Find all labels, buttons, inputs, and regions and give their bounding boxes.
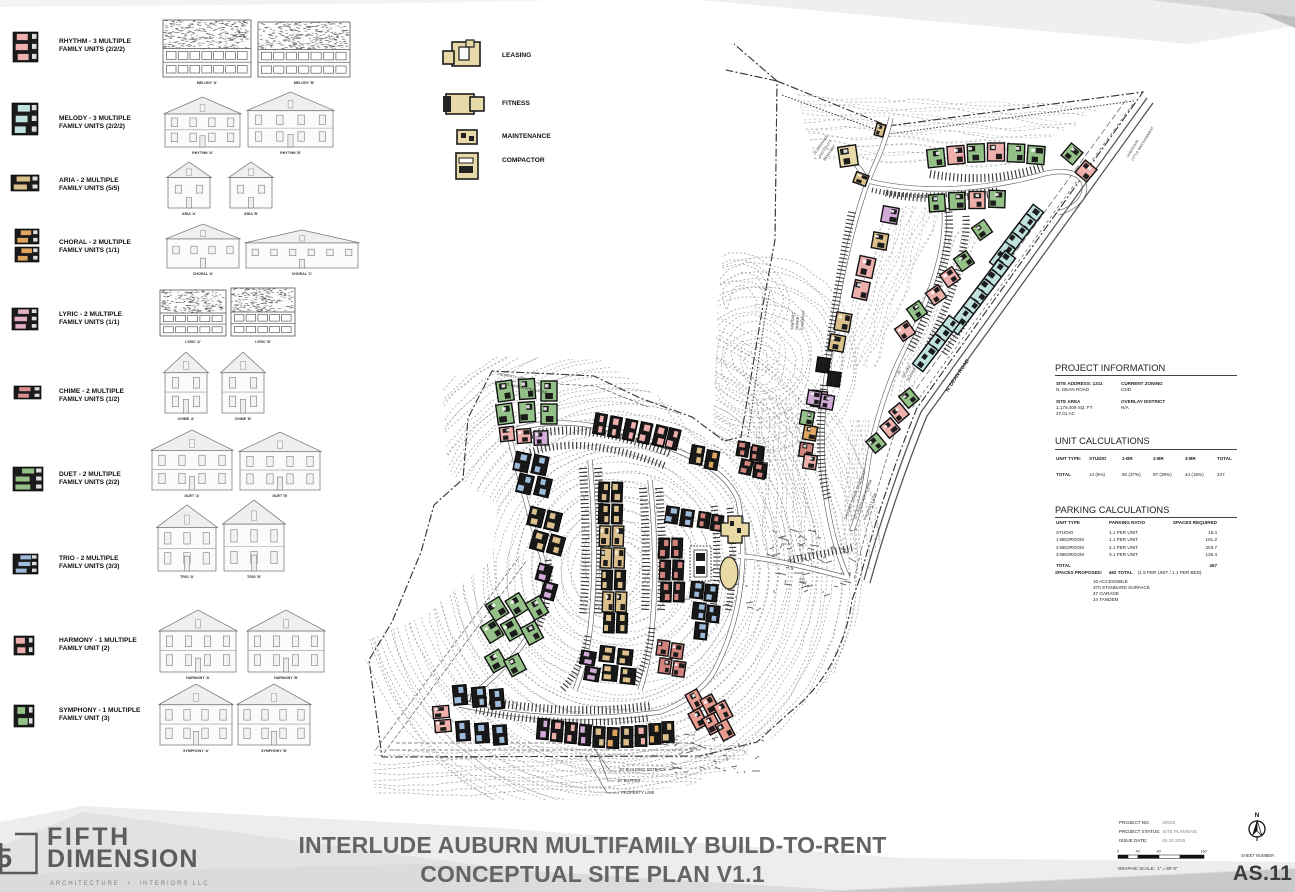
svg-text:CHORAL 'C': CHORAL 'C' (292, 272, 313, 276)
svg-text:SYMPHONY 'A': SYMPHONY 'A' (183, 749, 209, 753)
svg-text:MELODY 'B': MELODY 'B' (294, 81, 315, 85)
svg-text:DUET 'B': DUET 'B' (272, 494, 287, 498)
svg-text:DUET 'A': DUET 'A' (184, 494, 199, 498)
svg-text:PROPERTY LINE: PROPERTY LINE (621, 790, 655, 795)
svg-text:CHIME 'B': CHIME 'B' (235, 417, 252, 421)
svg-text:HARMONY 'A': HARMONY 'A' (186, 676, 210, 680)
svg-text:HARMONY 'B': HARMONY 'B' (274, 676, 298, 680)
svg-text:LYRIC 'A': LYRIC 'A' (185, 340, 201, 344)
svg-text:LYRIC 'B': LYRIC 'B' (255, 340, 271, 344)
svg-text:20' BUILDING SETBACK: 20' BUILDING SETBACK (619, 767, 666, 772)
svg-text:TRIO 'B': TRIO 'B' (247, 575, 261, 579)
svg-text:CHORAL 'A': CHORAL 'A' (193, 272, 214, 276)
svg-text:ARIA 'B': ARIA 'B' (244, 212, 258, 216)
svg-text:N: N (1255, 812, 1260, 819)
svg-text:MELODY 'A': MELODY 'A' (197, 81, 218, 85)
svg-text:5: 5 (0, 843, 12, 873)
svg-text:SYMPHONY 'B': SYMPHONY 'B' (261, 749, 287, 753)
svg-text:EASEMENT: EASEMENT (800, 309, 806, 330)
svg-text:CHIME 'A': CHIME 'A' (178, 417, 195, 421)
svg-text:RHYTHM 'B': RHYTHM 'B' (280, 151, 301, 155)
svg-text:160': 160' (1201, 850, 1208, 854)
svg-text:RHYTHM 'A': RHYTHM 'A' (192, 151, 213, 155)
svg-text:ARIA 'A': ARIA 'A' (182, 212, 196, 216)
svg-text:10' BUFFER: 10' BUFFER (617, 778, 640, 783)
svg-text:TRIO 'A': TRIO 'A' (180, 575, 194, 579)
